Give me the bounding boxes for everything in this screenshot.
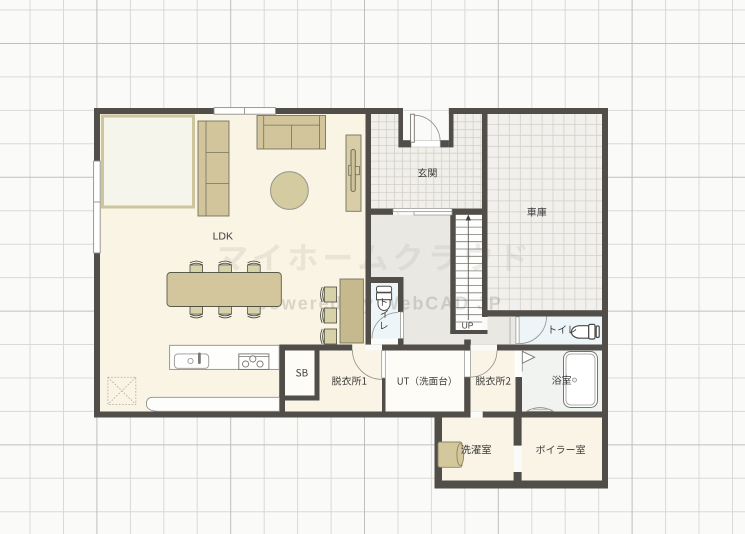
svg-text:UP: UP xyxy=(462,321,474,331)
svg-text:LDK: LDK xyxy=(213,231,233,243)
